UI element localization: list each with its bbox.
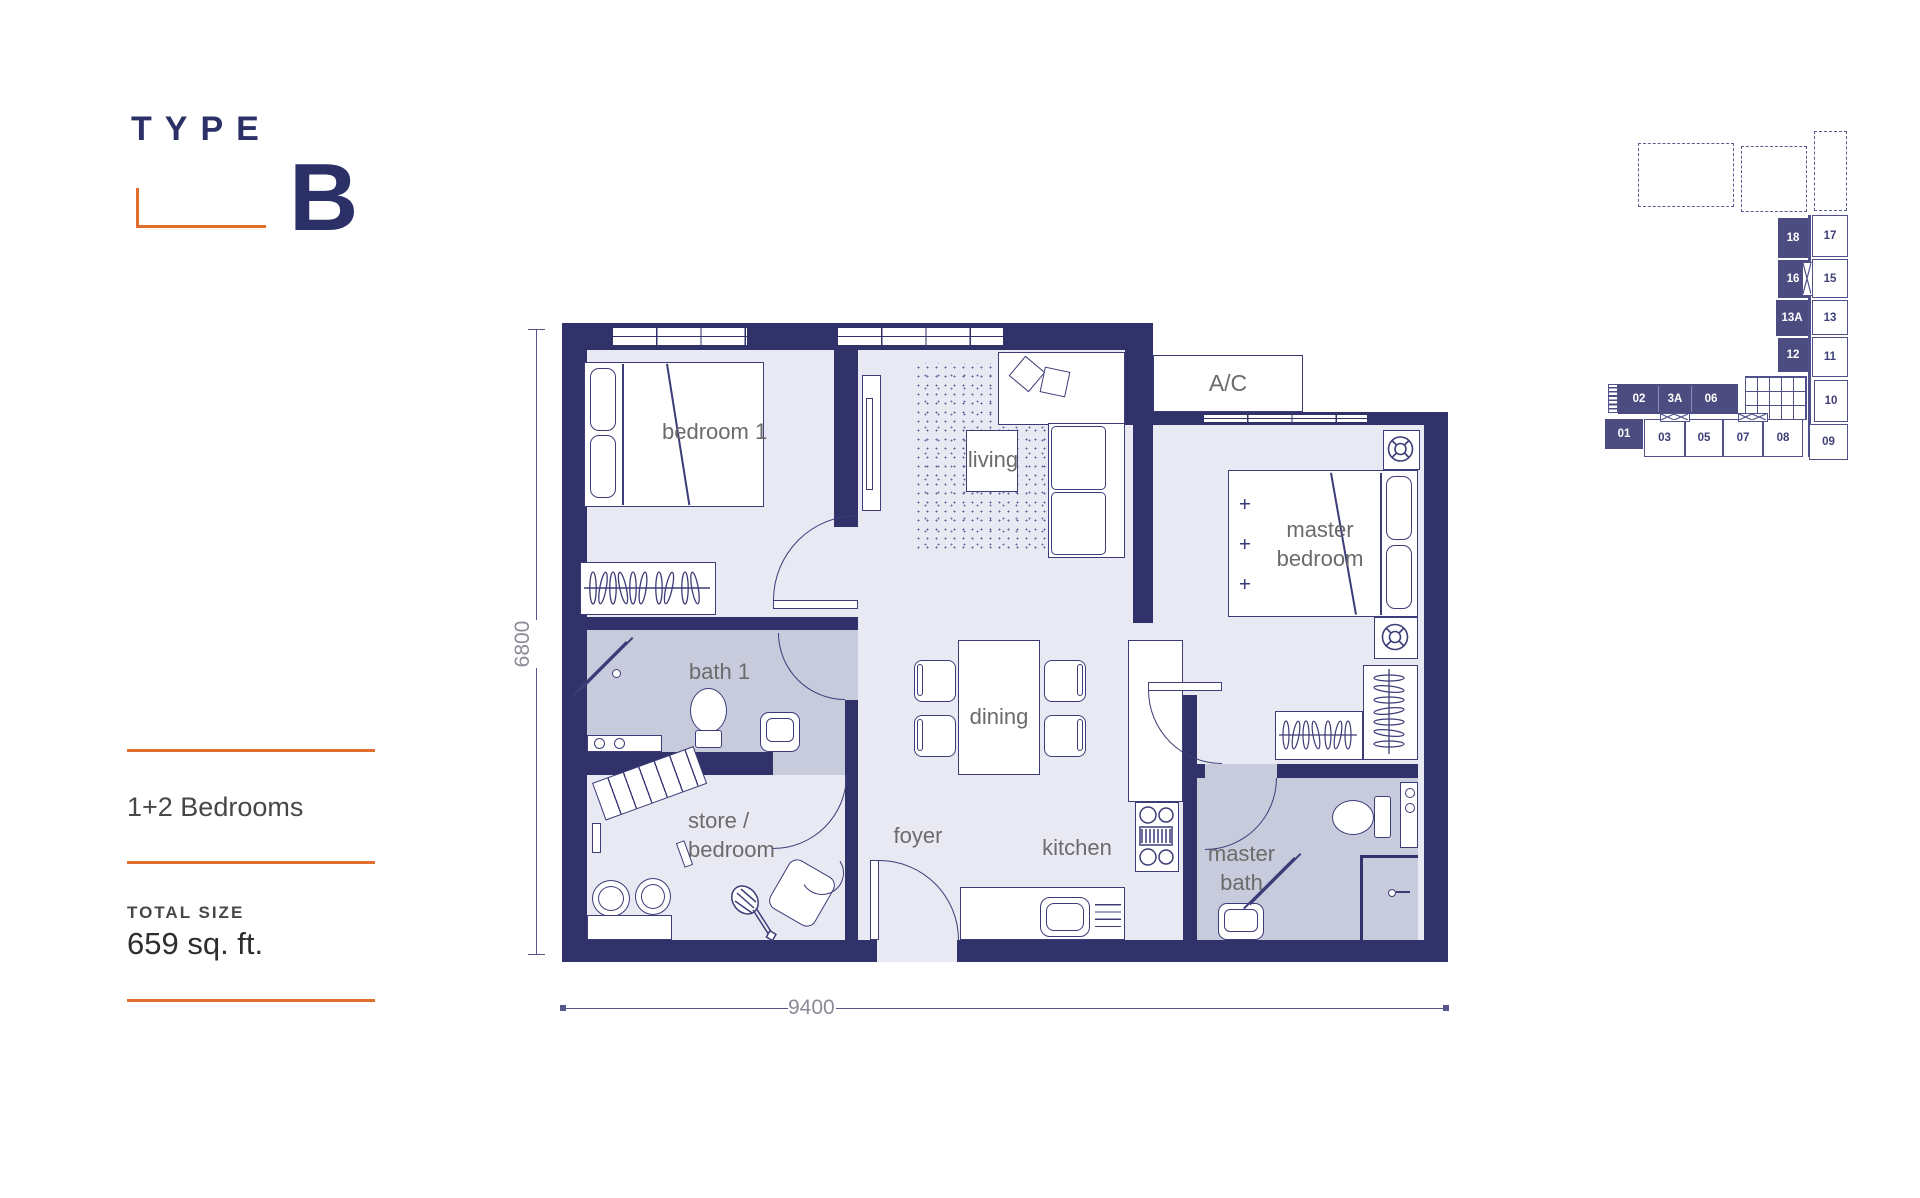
keyplan-unit-18: 18 (1778, 218, 1808, 258)
tv (866, 398, 873, 490)
stove (1135, 802, 1179, 872)
wall-segment (1277, 764, 1418, 778)
keyplan-unit-10: 10 (1814, 380, 1848, 422)
master-bedroom-label: master bedroom (1264, 515, 1376, 573)
keyplan-corridor (1808, 215, 1811, 457)
plus-mark (1240, 539, 1250, 549)
toilet (1332, 800, 1374, 835)
pillow (1386, 476, 1412, 540)
keyplan-unit-09: 09 (1809, 424, 1848, 460)
dining-chair (914, 715, 956, 757)
door-leaf (773, 600, 858, 609)
keyplan-stair-hatch (1608, 384, 1618, 413)
wall-segment (1125, 323, 1153, 425)
pillow (590, 435, 616, 498)
kitchen-label: kitchen (1017, 835, 1137, 861)
wall-segment (1196, 764, 1205, 778)
dining-chair (914, 660, 956, 702)
elevator-icon (1738, 413, 1768, 422)
key-plan: 18 16 13A 12 17 15 13 11 10 09 02 3A 06 … (1600, 110, 1860, 470)
knob (614, 738, 625, 749)
keyplan-unit-02: 02 (1622, 386, 1656, 412)
window (1203, 414, 1368, 423)
ac-ledge: A/C (1153, 355, 1303, 412)
ceiling-fan-icon (1383, 430, 1420, 470)
type-letter: B (289, 150, 358, 246)
ceiling-fan-icon (1374, 617, 1418, 659)
elevator-icon (1660, 413, 1690, 422)
keyplan-unit-12: 12 (1778, 338, 1808, 372)
drain-board (1095, 903, 1121, 933)
dimension-line-horizontal (562, 1008, 788, 1009)
sink-basin (1046, 903, 1084, 931)
dining-chair (1044, 660, 1086, 702)
tap-stem (1396, 891, 1410, 893)
window (837, 327, 1004, 346)
dimension-line-vertical (536, 668, 537, 955)
window (612, 327, 748, 346)
keyplan-unit-17: 17 (1812, 215, 1848, 257)
sofa-cushion (1051, 492, 1106, 555)
foyer-label: foyer (862, 823, 974, 849)
keyplan-unit-03: 03 (1644, 419, 1685, 457)
total-size-label: TOTAL SIZE (127, 903, 244, 923)
dashed-outline (1741, 146, 1807, 212)
shower-head (612, 669, 621, 678)
divider-line (127, 861, 375, 864)
toilet (690, 688, 727, 733)
stool-inner (598, 886, 624, 911)
dimension-endpoint (1443, 1005, 1449, 1011)
dimension-tick (528, 329, 545, 330)
dashed-outline (1638, 143, 1734, 207)
bed-line (622, 364, 624, 505)
shelf-leg (592, 823, 601, 853)
wall-segment (1360, 855, 1363, 940)
ac-label: A/C (1154, 356, 1302, 411)
bedroom1-label: bedroom 1 (662, 417, 767, 446)
type-label: TYPE (131, 110, 272, 149)
keyplan-unit-13a: 13A (1776, 300, 1808, 336)
plus-mark (1240, 499, 1250, 509)
elevator-icon (1802, 262, 1813, 296)
dimension-endpoint (560, 1005, 566, 1011)
bed-line (1380, 473, 1382, 615)
dining-label: dining (958, 704, 1040, 730)
wall-segment (1133, 412, 1153, 623)
sofa-cushion (1051, 426, 1106, 490)
dashed-outline (1814, 131, 1847, 211)
wall-segment (845, 775, 858, 940)
dimension-line-horizontal (836, 1008, 1448, 1009)
tap (1388, 889, 1396, 897)
entrance-door-leaf (870, 860, 879, 940)
knob (1405, 803, 1415, 813)
type-bracket-vertical (136, 188, 139, 228)
bath1-label: bath 1 (662, 659, 777, 685)
wall-segment (834, 350, 858, 527)
wall-segment (562, 940, 877, 962)
keyplan-unit-07: 07 (1723, 419, 1763, 457)
wardrobe-hangers (1275, 711, 1363, 760)
wardrobe-hangers (1363, 665, 1418, 760)
wall-segment (845, 700, 858, 775)
sofa-pillow (1040, 367, 1071, 398)
dimension-tick (528, 954, 545, 955)
wall-segment (957, 940, 1448, 962)
pillow (1386, 545, 1412, 609)
wall-segment (1360, 855, 1418, 858)
plus-mark (1240, 579, 1250, 589)
store-counter (587, 915, 672, 940)
floor-plan: A/C bedroom 1 (562, 323, 1448, 962)
total-size-value: 659 sq. ft. (127, 926, 263, 962)
keyplan-unit-3a: 3A (1658, 386, 1692, 412)
pillow (590, 368, 616, 431)
wardrobe-hangers (580, 562, 716, 615)
dining-chair (1044, 715, 1086, 757)
sink-basin (766, 718, 794, 742)
stool-inner (641, 884, 665, 909)
dimension-line-vertical (536, 330, 537, 620)
dimension-label-width: 9400 (788, 996, 834, 1020)
dimension-label-height: 6800 (511, 604, 537, 684)
type-bracket-horizontal (136, 225, 266, 228)
wall-segment (562, 617, 858, 630)
keyplan-unit-05: 05 (1685, 419, 1723, 457)
keyplan-unit-08: 08 (1763, 419, 1803, 457)
keyplan-unit-15: 15 (1812, 259, 1848, 298)
knob (594, 738, 605, 749)
divider-line (127, 749, 375, 752)
toilet-tank (695, 730, 722, 748)
divider-line (127, 999, 375, 1002)
sink-basin (1224, 909, 1258, 932)
keyplan-unit-11: 11 (1812, 337, 1848, 377)
bedrooms-text: 1+2 Bedrooms (127, 792, 303, 823)
wall-segment (1424, 412, 1448, 962)
page: TYPE B 1+2 Bedrooms TOTAL SIZE 659 sq. f… (0, 0, 1920, 1198)
toilet-tank (1374, 796, 1391, 838)
keyplan-unit-06: 06 (1694, 386, 1728, 412)
keyplan-unit-01: 01 (1605, 419, 1643, 449)
keyplan-unit-13: 13 (1812, 300, 1848, 335)
knob (1405, 788, 1415, 798)
living-label: living (934, 447, 1052, 473)
